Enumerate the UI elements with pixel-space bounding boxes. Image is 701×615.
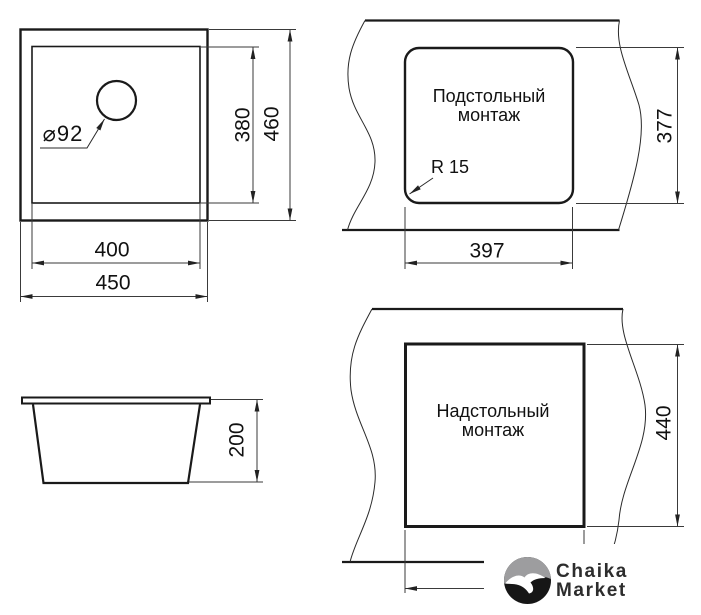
undermount-title-line2: монтаж [458,106,520,124]
dim-label-400: 400 [94,240,129,261]
undermount-title-line1: Подстольный [433,87,546,105]
dim-label-460: 460 [262,106,283,141]
undermount-view [342,21,641,231]
wavy-break-line-right [609,309,646,560]
dim-label-380: 380 [233,107,254,142]
radius-label: R 15 [431,158,469,176]
topmount-title-line2: монтаж [462,421,524,439]
drawing-linework [0,0,701,615]
dim-label-440: 440 [654,405,675,440]
drain-diameter-label: ⌀92 [43,123,84,145]
wavy-break-line-left [350,309,375,562]
radius-leader-line [410,178,434,194]
plan-view-dimensions [21,30,297,303]
topmount-title-line1: Надстольный [437,402,550,420]
bowl-trapezoid [33,405,200,484]
dim-label-450: 450 [95,273,130,294]
side-view [22,398,210,484]
sink-rim-bar [22,398,210,404]
wavy-break-line-left [348,21,376,231]
logo-text-line2: Market [556,580,627,602]
dim-label-377: 377 [655,108,676,143]
sink-technical-drawing: ⌀92 380 460 400 450 Подстольный монтаж R… [0,0,701,615]
dim-label-397: 397 [469,241,504,262]
drain-hole-circle [97,81,136,120]
wavy-break-line-right [618,21,641,231]
dim-label-200: 200 [227,422,248,457]
